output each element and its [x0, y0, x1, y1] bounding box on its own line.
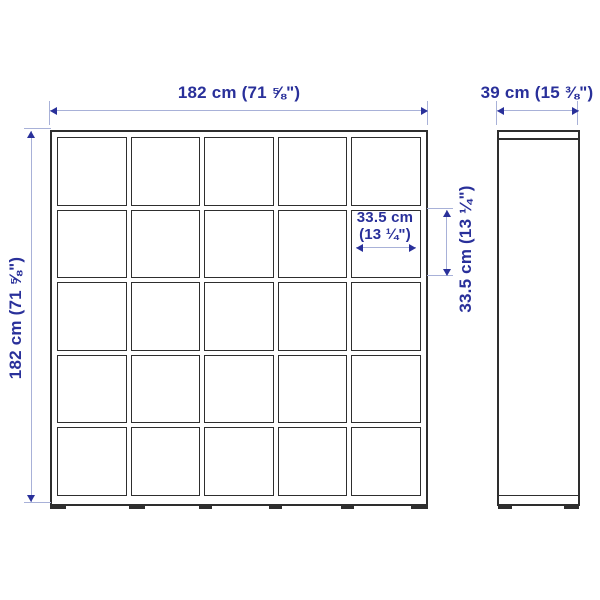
cell-height-dimension-line: [446, 210, 447, 276]
grid-cell: [204, 137, 274, 206]
grid-cell: [351, 427, 421, 496]
grid-cell: [204, 355, 274, 424]
total-width-label: 182 cm (71 ⅝"): [50, 83, 428, 103]
side-top-panel-line: [499, 138, 578, 140]
foot: [564, 505, 579, 509]
cell-height-label: 33.5 cm (13 ¼"): [456, 185, 476, 312]
width-dimension-line: [50, 110, 428, 111]
cell-width-label-line2: (13 ¼"): [353, 226, 417, 243]
grid-cell: [57, 282, 127, 351]
front-view: [50, 130, 428, 506]
arrowhead-right-icon: [572, 107, 579, 115]
foot: [50, 505, 66, 509]
grid-cell: [351, 282, 421, 351]
grid-cell: [204, 427, 274, 496]
arrowhead-left-icon: [497, 107, 504, 115]
arrowhead-right-icon: [409, 244, 416, 252]
cell-width-label-line1: 33.5 cm: [353, 209, 417, 226]
total-height-label: 182 cm (71 ⅝"): [6, 257, 26, 379]
grid-cell: [278, 427, 348, 496]
grid-cell: [131, 427, 201, 496]
grid-cell: [351, 137, 421, 206]
side-bottom-panel-line: [499, 495, 578, 497]
grid-cell: [204, 210, 274, 279]
grid-cell: [57, 427, 127, 496]
extension-line: [24, 502, 51, 503]
arrowhead-right-icon: [421, 107, 428, 115]
cell-width-dimension-line: [356, 247, 416, 248]
arrowhead-up-icon: [443, 210, 451, 217]
grid-cell: [278, 355, 348, 424]
arrowhead-left-icon: [50, 107, 57, 115]
grid-cell: [131, 282, 201, 351]
grid-cell: [131, 355, 201, 424]
grid-cell: [57, 355, 127, 424]
front-grid: [57, 137, 421, 496]
foot: [129, 505, 145, 509]
arrowhead-down-icon: [443, 269, 451, 276]
arrowhead-up-icon: [27, 131, 35, 138]
grid-cell: [278, 210, 348, 279]
foot: [498, 505, 512, 509]
grid-cell: [57, 210, 127, 279]
grid-cell: [131, 137, 201, 206]
grid-cell: [57, 137, 127, 206]
foot: [199, 505, 212, 509]
foot: [269, 505, 282, 509]
arrowhead-left-icon: [356, 244, 363, 252]
grid-cell: [278, 282, 348, 351]
extension-line: [427, 208, 453, 209]
grid-cell: [278, 137, 348, 206]
arrowhead-down-icon: [27, 495, 35, 502]
extension-line: [24, 128, 51, 129]
foot: [411, 505, 428, 509]
depth-label: 39 cm (15 ⅜"): [480, 83, 594, 103]
side-view: [497, 130, 580, 506]
foot: [341, 505, 354, 509]
depth-dimension-line: [497, 110, 579, 111]
grid-cell: [204, 282, 274, 351]
product-dimension-diagram: 182 cm (71 ⅝") 39 cm (15 ⅜") 182 cm (71 …: [0, 0, 600, 600]
grid-cell: [351, 355, 421, 424]
grid-cell: [131, 210, 201, 279]
height-dimension-line: [31, 131, 32, 502]
